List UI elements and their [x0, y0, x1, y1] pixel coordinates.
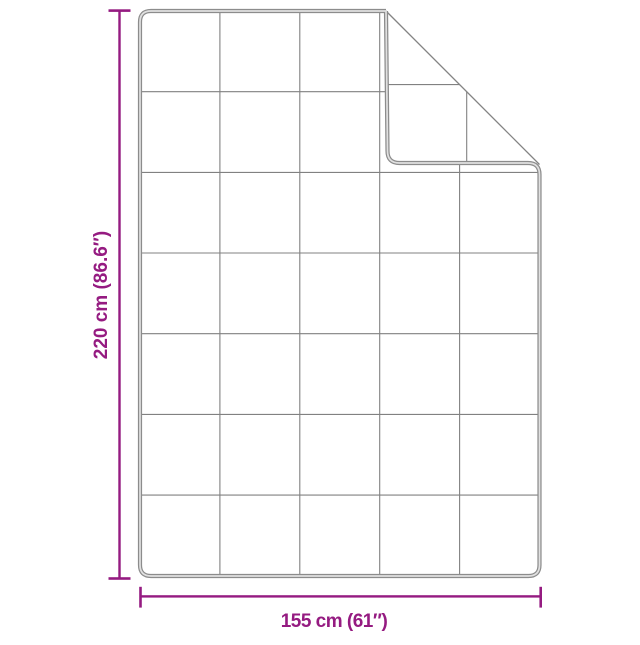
svg-text:155 cm (61″): 155 cm (61″): [281, 611, 388, 632]
svg-text:220 cm (86.6″): 220 cm (86.6″): [91, 231, 112, 359]
